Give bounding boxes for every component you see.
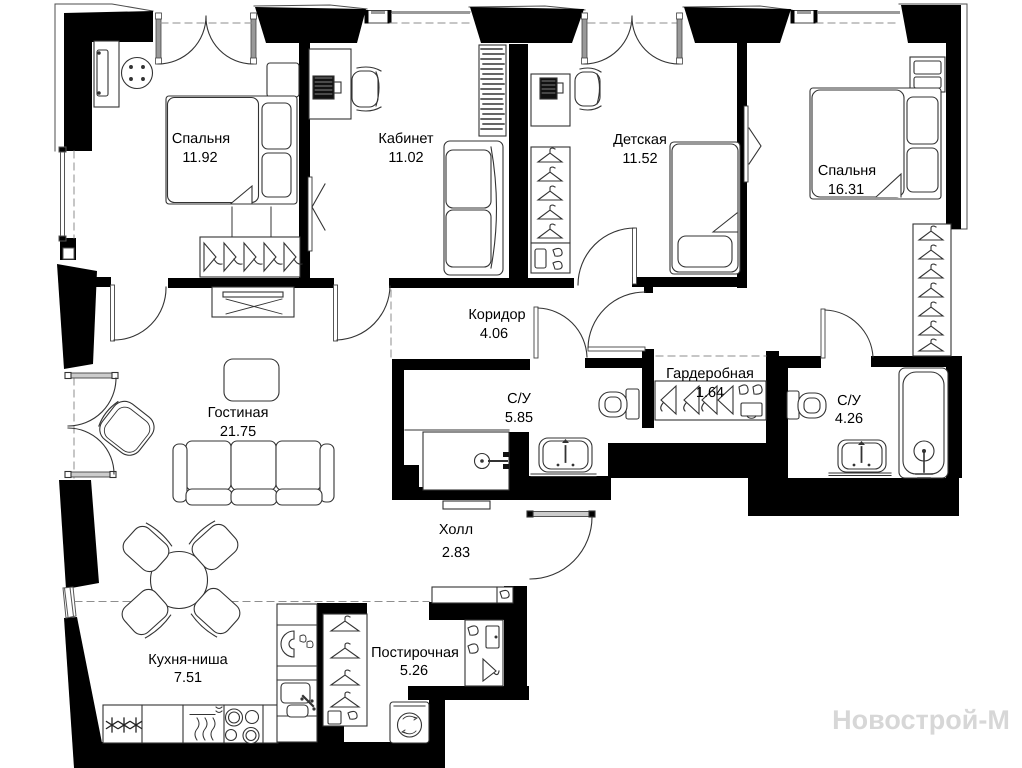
svg-text:11.92: 11.92 — [182, 150, 217, 166]
svg-text:5.26: 5.26 — [400, 663, 428, 679]
svg-text:Спальня: Спальня — [172, 131, 230, 147]
svg-text:16.31: 16.31 — [828, 182, 864, 198]
svg-text:С/У: С/У — [507, 391, 532, 407]
svg-text:Детская: Детская — [613, 132, 667, 148]
svg-text:2.83: 2.83 — [442, 545, 470, 561]
svg-text:1.64: 1.64 — [696, 385, 724, 401]
svg-text:Кухня-ниша: Кухня-ниша — [148, 652, 228, 668]
svg-text:4.26: 4.26 — [835, 411, 863, 427]
svg-text:21.75: 21.75 — [220, 424, 256, 440]
svg-text:Кабинет: Кабинет — [378, 131, 434, 147]
svg-text:4.06: 4.06 — [480, 326, 508, 342]
svg-text:Гардеробная: Гардеробная — [666, 366, 754, 382]
svg-text:Спальня: Спальня — [818, 163, 876, 179]
svg-text:11.02: 11.02 — [388, 150, 423, 166]
svg-text:7.51: 7.51 — [174, 670, 202, 686]
svg-text:С/У: С/У — [837, 393, 862, 409]
svg-text:Холл: Холл — [439, 522, 473, 538]
svg-text:5.85: 5.85 — [505, 410, 533, 426]
svg-text:Постирочная: Постирочная — [371, 645, 459, 661]
svg-text:Гостиная: Гостиная — [208, 405, 269, 421]
svg-text:Коридор: Коридор — [468, 307, 525, 323]
svg-text:Новострой-М: Новострой-М — [832, 705, 1010, 735]
svg-text:11.52: 11.52 — [622, 151, 657, 167]
